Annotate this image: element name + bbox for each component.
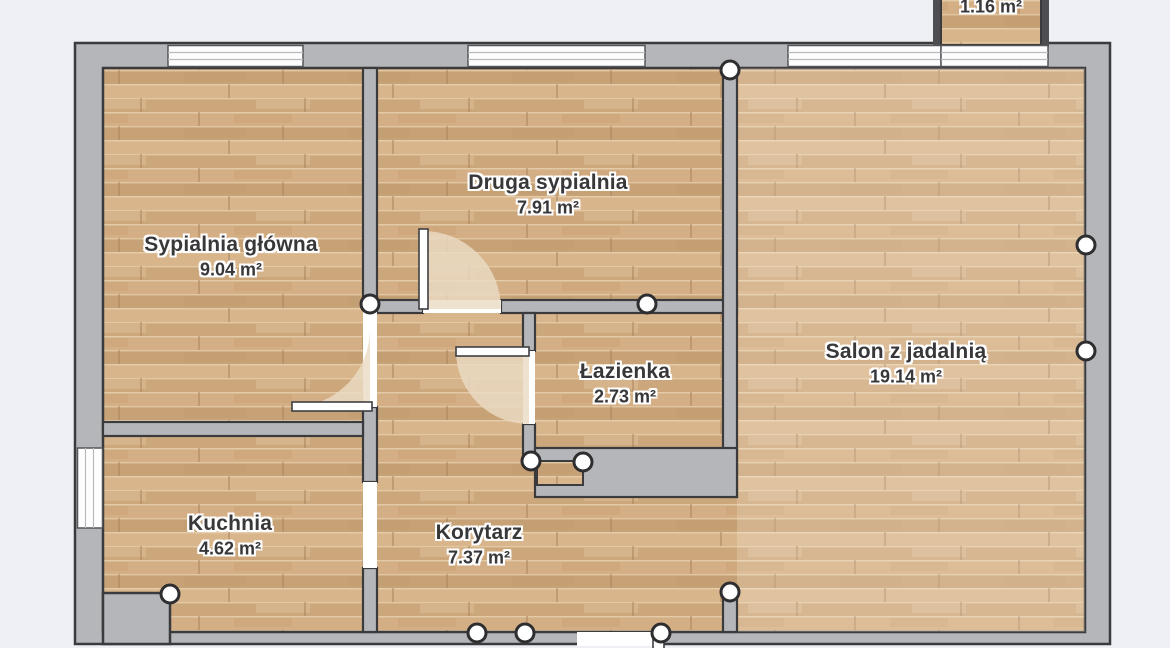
floor-plan: Sypialnia główna 9.04 m² Druga sypialnia…	[0, 0, 1170, 648]
wall-master-bedroom-east-lower	[363, 407, 377, 482]
wall-bathroom-west-upper	[523, 313, 535, 351]
balcony-wall-left	[933, 0, 941, 47]
wall-node-marker	[638, 295, 656, 313]
room-area-balcony: 1.16 m²	[960, 0, 1022, 18]
room-label-second-bedroom: Druga sypialnia	[468, 171, 627, 195]
room-area-living-room: 19.14 m²	[870, 367, 942, 388]
master-bedroom-door-panel	[292, 402, 372, 411]
balcony-wall-right	[1041, 0, 1049, 47]
room-area-bathroom: 2.73 m²	[594, 387, 656, 408]
room-label-living-room: Salon z jadalnią	[826, 340, 987, 364]
room-label-corridor: Korytarz	[436, 521, 523, 545]
wall-node-marker	[361, 295, 379, 313]
wall-node-marker	[1077, 342, 1095, 360]
wall-kitchen-corridor-lower	[363, 568, 377, 632]
room-label-master-bedroom: Sypialnia główna	[144, 233, 318, 257]
room-label-kitchen: Kuchnia	[188, 512, 272, 536]
wall-bedroom-kitchen	[103, 422, 363, 436]
room-area-corridor: 7.37 m²	[448, 548, 510, 569]
second-bedroom-door-panel	[419, 229, 428, 309]
wall-second-bedroom-south-west	[377, 300, 423, 313]
floor-plan-drawing	[0, 0, 1170, 648]
room-area-kitchen: 4.62 m²	[199, 539, 261, 560]
balcony-door-window	[941, 46, 1048, 67]
wall-node-marker	[721, 583, 739, 601]
wall-node-marker	[516, 624, 534, 642]
window-living-room	[788, 46, 941, 67]
entrance-door-hinge-marker	[652, 624, 670, 642]
wall-node-marker	[161, 585, 179, 603]
wall-master-bedroom-east-upper	[363, 68, 377, 305]
window-kitchen	[78, 448, 103, 528]
wall-node-marker	[721, 61, 739, 79]
wall-node-marker	[468, 624, 486, 642]
bathroom-door-panel	[456, 347, 529, 356]
window-master-bedroom	[168, 46, 303, 67]
wall-node-marker	[1077, 236, 1095, 254]
kitchen-opening	[363, 482, 377, 568]
window-second-bedroom	[468, 46, 645, 67]
entrance-door-opening	[577, 632, 658, 646]
room-label-bathroom: Łazienka	[580, 360, 670, 384]
outer-wall-kitchen-step	[103, 593, 170, 644]
wall-node-marker	[574, 453, 592, 471]
wall-node-marker	[522, 452, 540, 470]
room-area-master-bedroom: 9.04 m²	[200, 260, 262, 281]
wall-second-bedroom-south-east	[501, 300, 737, 313]
room-area-second-bedroom: 7.91 m²	[517, 198, 579, 219]
wall-living-room-west	[723, 68, 737, 497]
